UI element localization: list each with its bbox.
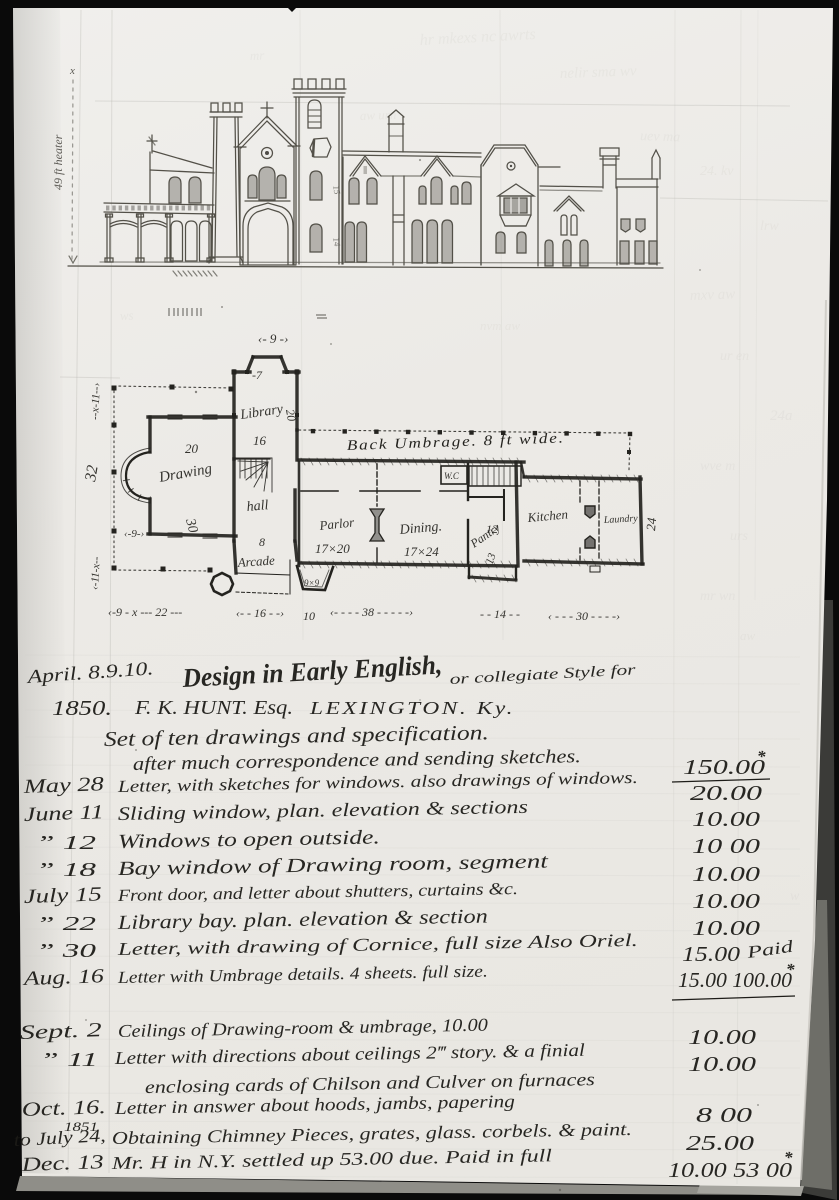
svg-text:20: 20 — [283, 408, 299, 422]
svg-text:July 15: July 15 — [23, 883, 102, 908]
svg-text:uev ma: uev ma — [640, 129, 681, 145]
svg-text:F. K. HUNT. Esq.: F. K. HUNT. Esq. — [134, 697, 293, 719]
svg-text:Aug. 16: Aug. 16 — [21, 965, 104, 990]
svg-text:150.00: 150.00 — [683, 755, 766, 779]
svg-text:‹- 9 -›: ‹- 9 -› — [258, 331, 288, 346]
svg-text:*: * — [784, 1148, 793, 1167]
svg-text:10.00 53 00: 10.00 53 00 — [668, 1158, 793, 1182]
svg-text:Arcade: Arcade — [236, 552, 275, 570]
svg-text:‹- - 16 - -›: ‹- - 16 - -› — [236, 606, 284, 620]
svg-text:10.00: 10.00 — [692, 916, 761, 940]
svg-text:10.00: 10.00 — [692, 807, 761, 831]
svg-text:x: x — [69, 65, 75, 77]
svg-text:‹ - - - 30 - - - -›: ‹ - - - 30 - - - -› — [548, 609, 620, 623]
svg-text:lrw: lrw — [760, 219, 779, 234]
svg-text:1850.: 1850. — [52, 696, 112, 720]
svg-text:Oct. 16.: Oct. 16. — [21, 1096, 106, 1121]
svg-text:mr wn: mr wn — [700, 589, 735, 604]
svg-text:8: 8 — [259, 535, 265, 549]
svg-text:‹-11-x--: ‹-11-x-- — [89, 556, 103, 590]
svg-text:20: 20 — [185, 441, 199, 456]
svg-text:w: w — [790, 889, 800, 904]
svg-text:1851: 1851 — [64, 1119, 98, 1134]
svg-text:10.00: 10.00 — [688, 1025, 757, 1049]
svg-text:24a: 24a — [770, 408, 793, 424]
svg-text:*: * — [786, 960, 795, 979]
svg-text:ws: ws — [120, 308, 134, 323]
svg-text:mxv aw: mxv aw — [690, 286, 736, 304]
svg-text:*: * — [757, 747, 766, 766]
svg-text:16: 16 — [253, 433, 267, 448]
svg-text:10.00: 10.00 — [692, 862, 761, 886]
svg-text:” 30: ” 30 — [36, 940, 96, 962]
svg-text:June 11: June 11 — [23, 801, 104, 826]
svg-text:‹-9 - x --- 22 ---: ‹-9 - x --- 22 --- — [108, 605, 182, 619]
svg-text:10: 10 — [303, 609, 315, 623]
svg-text:‹- - - - 38 - - - - -›: ‹- - - - 38 - - - - -› — [330, 605, 413, 619]
svg-text:nelir sma wv: nelir sma wv — [560, 63, 638, 82]
svg-text:9×9: 9×9 — [304, 578, 320, 588]
svg-text:” 12: ” 12 — [36, 832, 96, 854]
svg-text:10.00: 10.00 — [688, 1052, 757, 1076]
svg-text:15.00: 15.00 — [682, 942, 741, 966]
svg-text:17×24: 17×24 — [404, 544, 439, 559]
svg-text:49 ft heater: 49 ft heater — [51, 134, 65, 190]
svg-text:Sept. 2: Sept. 2 — [19, 1019, 102, 1044]
svg-text:” 22: ” 22 — [36, 913, 96, 935]
svg-text:hall: hall — [246, 498, 269, 515]
svg-text:LEXINGTON. Ky.: LEXINGTON. Ky. — [309, 698, 515, 718]
svg-text:25.00: 25.00 — [686, 1131, 755, 1155]
svg-text:‹-9-›: ‹-9-› — [124, 528, 144, 540]
svg-text:24. kv: 24. kv — [700, 164, 734, 179]
svg-text:ur en: ur en — [720, 349, 749, 364]
svg-text:Windows to open outside.: Windows to open outside. — [118, 826, 380, 853]
svg-text:10.00: 10.00 — [692, 889, 761, 913]
svg-text:nvm aw: nvm aw — [480, 318, 520, 333]
svg-text:urs: urs — [730, 529, 748, 544]
svg-text:wve m: wve m — [700, 459, 735, 474]
svg-text:” 18: ” 18 — [36, 859, 96, 881]
svg-text:Laundry: Laundry — [603, 513, 639, 526]
svg-text:15.00 100.00: 15.00 100.00 — [678, 968, 793, 992]
svg-text:Dec. 13: Dec. 13 — [20, 1151, 104, 1176]
svg-text:10 00: 10 00 — [692, 834, 761, 858]
svg-text:May 28: May 28 — [22, 773, 104, 798]
svg-text:24: 24 — [643, 517, 659, 532]
svg-text:W.C: W.C — [444, 471, 460, 481]
svg-text:8 00: 8 00 — [696, 1103, 753, 1127]
svg-text:--x-11--›: --x-11--› — [89, 382, 103, 420]
svg-text:17×20: 17×20 — [315, 541, 350, 556]
svg-text:mr: mr — [250, 47, 266, 63]
svg-text:32: 32 — [82, 464, 102, 484]
svg-text:aw: aw — [740, 628, 756, 643]
svg-text:-7: -7 — [252, 368, 263, 382]
svg-text:20.00: 20.00 — [690, 781, 763, 805]
svg-text:- - 14 - -: - - 14 - - — [480, 607, 520, 621]
svg-text:” 11: ” 11 — [40, 1049, 98, 1071]
